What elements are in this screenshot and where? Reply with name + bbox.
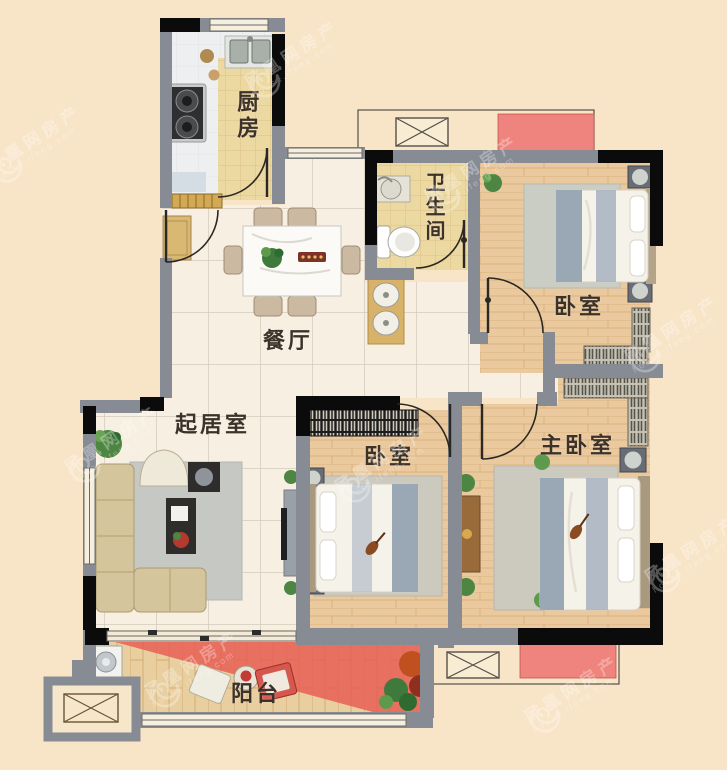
bed-icon: [556, 188, 656, 284]
window-icon: [210, 19, 268, 31]
label-living: 起居室: [175, 412, 250, 437]
wardrobe-icon: [584, 346, 648, 366]
label-dining: 餐厅: [263, 328, 313, 353]
bed-icon: [540, 476, 650, 610]
kitchen-mat: [170, 172, 206, 192]
window-icon: [142, 714, 406, 726]
chair-icon: [224, 246, 242, 274]
plant-icon: [284, 581, 298, 595]
bed-icon: [306, 484, 418, 592]
wardrobe-icon: [564, 378, 648, 398]
pillow-icon: [618, 486, 634, 530]
sink-icon: [252, 40, 270, 63]
sliding-door-icon: [107, 630, 296, 641]
label-balcony: 阳台: [231, 681, 281, 706]
sofa-icon: [96, 464, 134, 612]
tv-icon: [281, 508, 287, 560]
toilet-icon: [377, 226, 420, 258]
label-bathroom: 卫生间: [421, 172, 444, 244]
plant-icon: [94, 430, 122, 458]
plate-icon: [200, 49, 214, 63]
wardrobe-icon: [308, 410, 418, 436]
plate-icon: [209, 70, 220, 81]
wardrobe-icon: [628, 398, 648, 446]
chair-icon: [254, 296, 282, 316]
floorplan: 厨房 卫生间 卧室 餐厅 起居室 卧室 主卧室 阳台 凤凰网房产house.if…: [0, 0, 727, 770]
window-icon: [288, 148, 362, 158]
pillow-icon: [320, 540, 336, 580]
label-bedroom-middle: 卧室: [364, 444, 414, 469]
faucet-icon: [247, 36, 253, 42]
duct-x-icon: [447, 652, 499, 678]
floorplan-drawing: [0, 0, 727, 770]
shaft: [48, 681, 136, 737]
duct-x-icon: [396, 118, 448, 146]
washbasin-cabinet: [368, 278, 404, 344]
wardrobe-icon: [632, 308, 650, 352]
chair-icon: [288, 296, 316, 316]
pillow-icon: [630, 196, 645, 232]
pillow-icon: [320, 492, 336, 532]
label-bedroom-top: 卧室: [554, 294, 604, 319]
chair-icon: [288, 208, 316, 228]
pillow-icon: [618, 538, 634, 582]
plant-icon: [284, 470, 298, 484]
pillow-icon: [630, 240, 645, 276]
label-master-bedroom: 主卧室: [540, 433, 615, 458]
chair-icon: [254, 208, 282, 228]
window-icon: [84, 468, 95, 564]
label-kitchen: 厨房: [234, 90, 259, 142]
chair-icon: [342, 246, 360, 274]
sink-icon: [230, 40, 248, 63]
